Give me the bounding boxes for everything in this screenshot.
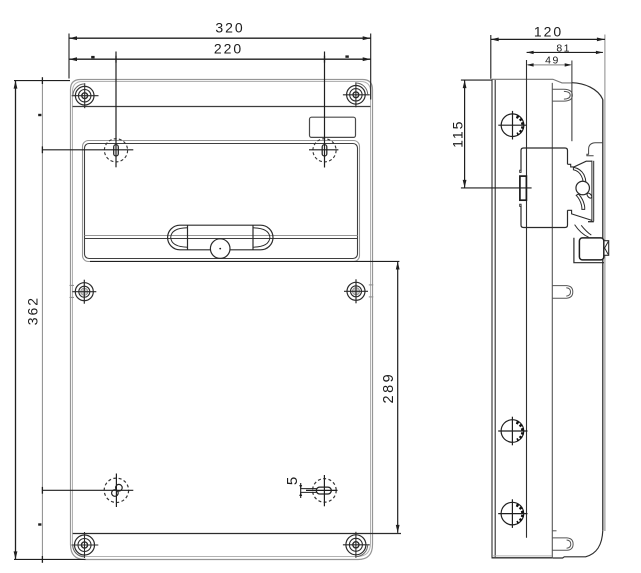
svg-text:49: 49 [545, 54, 560, 66]
svg-text:5: 5 [284, 477, 301, 485]
svg-text:289: 289 [381, 372, 397, 404]
svg-text:115: 115 [450, 120, 466, 148]
svg-text:320: 320 [215, 20, 244, 36]
svg-text:220: 220 [214, 41, 243, 57]
svg-text:362: 362 [25, 296, 41, 325]
svg-text:120: 120 [534, 24, 563, 40]
svg-text:81: 81 [556, 42, 571, 54]
